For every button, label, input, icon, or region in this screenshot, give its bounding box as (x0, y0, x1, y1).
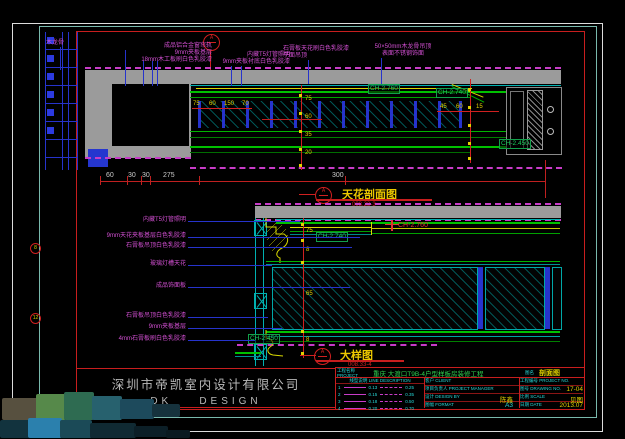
slab-dashed-bottom-left (85, 157, 191, 159)
ceiling-line (276, 219, 560, 220)
dim-chain-vertical (301, 85, 302, 170)
title-leader (299, 194, 315, 195)
stud (545, 267, 550, 329)
dim-tick (468, 106, 471, 109)
ceiling-line (266, 261, 560, 262)
dim-line-horizontal (192, 108, 252, 109)
dim-tick (299, 148, 302, 151)
line-sample (344, 401, 366, 402)
screw-symbol (547, 106, 554, 113)
glass-panel (552, 267, 562, 330)
legend-weight: 0.20 (369, 406, 378, 411)
dim-value: 75 (305, 96, 312, 102)
strip-divider (62, 32, 63, 170)
watermark-block (2, 398, 38, 420)
leader-line (188, 287, 350, 288)
stud (270, 101, 273, 128)
watermark-block (90, 423, 136, 438)
field-label: 设计 DESIGN BY (425, 394, 460, 401)
leader-line (188, 247, 352, 248)
stud (366, 101, 369, 128)
legend-row: 1 0.13 0.25 (336, 384, 424, 391)
fields-left: 客户 CLIENT 项目负责人 PROJECT MANAGER 设计 DESIG… (425, 378, 520, 408)
keynote-number: 8 (34, 245, 37, 251)
annotation-line: 9mm夹板基层 (136, 50, 212, 57)
field-value: 陈鑫 (500, 394, 519, 401)
ceiling-line (266, 336, 560, 337)
annotation-line: 50×50mm木龙骨吊顶 (368, 44, 438, 51)
ceiling-line (190, 97, 471, 98)
line-sample-dashed (380, 394, 402, 395)
drawing-name: 剖面图 (539, 368, 560, 378)
screw-symbol (547, 128, 554, 135)
legend-weight: 0.18 (369, 399, 378, 404)
ledge-line (235, 352, 261, 354)
dim-tick (301, 239, 304, 242)
watermark-block (36, 394, 66, 420)
annotation: 4mm石膏板刷白色乳胶漆 (40, 336, 186, 343)
section-marker-letter: A (210, 35, 213, 41)
legend-weight: 0.15 (369, 392, 378, 397)
ch-level-tag: CH-2.760 (368, 84, 400, 94)
ch-level-tag: CH-2.450 (248, 334, 280, 344)
detail-bubble-letter: A (322, 188, 325, 194)
revision-strip (45, 32, 78, 170)
title-underline (316, 199, 432, 201)
annotation-line: 成品铝合金窗帘轨 (136, 43, 212, 50)
legend-weight: 0.13 (369, 385, 378, 390)
fields-right: 工程编号 PROJECT NO. 图号 DRAWING NO. 17-04 比例… (520, 378, 583, 408)
dim-value: 60 (456, 104, 463, 110)
leader-line (308, 60, 309, 84)
field-label: 图号 DRAWING NO. (520, 386, 561, 393)
dim-value: 75 (306, 228, 313, 234)
field-value: A3 (505, 402, 519, 409)
ceiling-line (196, 88, 472, 89)
stud (294, 101, 297, 128)
field-row: 比例 SCALE 见图 (520, 394, 583, 402)
legend-row: 3 0.18 0.50 (336, 398, 424, 405)
leader-line (381, 58, 382, 84)
dim-tick (468, 157, 471, 160)
dim-tick-v (199, 176, 200, 185)
line-sample-dashed (380, 401, 402, 402)
leader-line (125, 50, 126, 86)
slab-strip (255, 206, 561, 218)
project-row: 工程名称 PROJECT 重庆 大渡口T9B-4户型样板房装修工程 图名 剖面图 (336, 368, 584, 378)
annotation: 石膏板吊顶白色乳胶漆 (40, 313, 186, 320)
field-value: 见图 (570, 394, 583, 401)
annotation: 木龙骨 (46, 40, 64, 47)
watermark-block (60, 420, 92, 438)
watermark-block (120, 399, 154, 419)
strip-cell-fill (47, 55, 54, 62)
dim-drop-line (545, 160, 546, 198)
title-block-table: 工程名称 PROJECT 重庆 大渡口T9B-4户型样板房装修工程 图名 剖面图… (335, 367, 585, 410)
field-row: 工程编号 PROJECT NO. (520, 378, 583, 386)
dim-value: 60 (106, 172, 114, 179)
ceiling-line (190, 152, 470, 153)
strip-cell-fill (47, 73, 54, 80)
strip-divider (68, 32, 69, 170)
dim-tick (299, 94, 302, 97)
watermark-block (166, 430, 190, 438)
stud (342, 101, 345, 128)
slab-top-strip (191, 70, 561, 84)
line-sample (344, 394, 366, 395)
annotation: 成品饰面板 (40, 283, 186, 290)
strip-cell-fill (47, 109, 54, 116)
field-row: 图幅 FORMAT A3 (425, 402, 519, 409)
project-label: 工程名称 PROJECT (336, 368, 373, 378)
field-value: 17-04 (566, 386, 583, 393)
stud (318, 101, 321, 128)
dim-value: 35 (305, 132, 312, 138)
ceiling-line (266, 341, 560, 342)
field-label: 客户 CLIENT (425, 378, 451, 385)
annotation: 内藏T5灯管照明 (40, 217, 186, 224)
detail-line-red (262, 119, 322, 120)
field-label: 工程编号 PROJECT NO. (520, 378, 569, 385)
ceiling-line (266, 264, 560, 265)
leader-line (188, 221, 300, 222)
dim-tick (468, 88, 471, 91)
dim-tick-v (345, 176, 346, 185)
dim-tick (299, 112, 302, 115)
dim-value: 150 (224, 101, 234, 107)
legend-weight: 0.50 (405, 399, 414, 404)
ceiling-line (266, 331, 560, 333)
leader-line (60, 47, 61, 70)
stud (478, 267, 483, 329)
leader-line (143, 61, 144, 86)
field-row: 设计 DESIGN BY 陈鑫 (425, 394, 519, 402)
annotation-line: 9mm夹板衬底白色乳胶漆 (222, 59, 290, 66)
cad-drawing-sheet: A CH-2.760 CH-2.740 CH-2.450 75 60 35 (0, 0, 625, 439)
leader-line (188, 237, 360, 238)
annotation-line: 表面不锈钢饰面 (368, 51, 438, 58)
line-sample (344, 408, 366, 409)
dim-tick (468, 124, 471, 127)
dim-value: 20 (305, 150, 312, 156)
annotation: 石膏板吊顶白色乳胶漆 (40, 243, 186, 250)
leader-line (157, 61, 158, 86)
dim-value: 300 (332, 172, 344, 179)
ch-level-tag: CH-2.740 (436, 88, 468, 98)
detail-bubble: A (315, 187, 332, 204)
dim-value: 275 (163, 172, 175, 179)
detail-bubble-letter: A (321, 349, 324, 355)
stud (414, 101, 417, 128)
dim-tick (301, 330, 304, 333)
ceiling-line (372, 233, 560, 234)
dim-value: 8 (306, 337, 309, 343)
glass-hatch (198, 101, 462, 128)
dim-tick (299, 130, 302, 133)
ch-level-tag: CH-2.450 (499, 139, 531, 149)
annotation-line: 石膏板天花刷白色乳胶漆 (283, 46, 363, 53)
dim-line-horizontal (437, 111, 499, 112)
stud (390, 101, 393, 128)
leader-line (188, 328, 282, 329)
annotation-block: 成品铝合金窗帘轨 9mm夹板基层 18mm木工板刷白色乳胶漆 (136, 43, 212, 64)
annotation-block: 内藏T5灯管照明 9mm夹板衬底白色乳胶漆 (222, 52, 290, 66)
watermark-block (0, 420, 30, 438)
leader-line (188, 265, 272, 266)
project-name: 重庆 大渡口T9B-4户型样板房装修工程 (373, 368, 525, 378)
field-label: 比例 SCALE (520, 394, 545, 401)
glass-panel (485, 267, 545, 330)
watermark-block (92, 396, 122, 420)
dim-value: 30 (128, 172, 136, 179)
annotation: 9mm天花夹板基层白色乳胶漆 (40, 233, 186, 240)
line-sample-dashed (380, 387, 402, 388)
company-name: 深圳市帝凯室内设计有限公司 (77, 374, 335, 393)
dim-tick (301, 223, 304, 226)
dim-value: 70 (242, 101, 249, 107)
dim-value: 75 (193, 101, 200, 107)
stud-section-symbol (254, 293, 267, 309)
ceiling-dashed-bottom (190, 167, 562, 169)
dim-value: 15 (476, 104, 483, 110)
dim-tick-v (100, 176, 101, 185)
leader-line (231, 66, 232, 86)
level-flag-arm (385, 224, 399, 225)
annotation-line: 平面吊顶 (283, 53, 363, 60)
leader-line (152, 61, 153, 86)
line-sample (344, 387, 366, 388)
keynote-bubble: 12 (30, 313, 41, 324)
field-label: 图幅 FORMAT (425, 402, 454, 409)
field-row: 客户 CLIENT (425, 378, 519, 386)
keynote-number: 12 (33, 315, 39, 321)
annotation-block: 50×50mm木龙骨吊顶 表面不锈钢饰面 (368, 44, 438, 58)
ledge-line (235, 356, 261, 357)
slab-dashed-outline (255, 203, 561, 205)
dim-value: 30 (142, 172, 150, 179)
legend-row: 2 0.15 0.35 (336, 391, 424, 398)
dim-value: 45 (440, 104, 447, 110)
dim-tick (299, 164, 302, 167)
field-row: 日期 DATE 2013.07 (520, 402, 583, 409)
field-row: 图号 DRAWING NO. 17-04 (520, 386, 583, 394)
level-flag (391, 220, 393, 231)
legend-row: 4 0.20 0.70 (336, 405, 424, 412)
ch-level-red: CH-2.760 (398, 222, 428, 229)
field-row: 项目负责人 PROJECT MANAGER (425, 386, 519, 394)
dim-chain-vertical (470, 79, 471, 163)
dim-value: 60 (209, 101, 216, 107)
watermark-block (64, 392, 94, 420)
watermark-block (134, 426, 168, 437)
slab-cavity (112, 84, 189, 146)
leader-line (188, 317, 268, 318)
annotation: 玻璃灯槽天花 (40, 261, 186, 268)
annotation: 9mm夹板基层 (40, 324, 186, 331)
watermark-block (28, 418, 62, 438)
dim-tick (468, 142, 471, 145)
legend-weight: 0.25 (405, 385, 414, 390)
annotation-line: 18mm木工板刷白色乳胶漆 (136, 57, 212, 64)
keynote-bubble: 8 (30, 243, 41, 254)
drawing-name-label: 图名 (525, 370, 539, 375)
legend-weight: 0.70 (405, 406, 414, 411)
dim-tick-v (150, 176, 151, 185)
legend-no: 1 (338, 385, 341, 390)
watermark-block (152, 404, 180, 417)
dim-tick (301, 261, 304, 264)
line-legend: 线型说明 LINE DESCRIPTION 1 0.13 0.25 2 0.15… (336, 378, 425, 408)
strip-cell-fill (47, 127, 54, 134)
legend-no: 2 (338, 392, 341, 397)
legend-no: 3 (338, 399, 341, 404)
legend-no: 4 (338, 406, 341, 411)
detail-bubble: A (314, 348, 331, 365)
legend-weight: 0.35 (405, 392, 414, 397)
dim-line-bottom (100, 181, 545, 182)
leader-line (241, 66, 242, 86)
annotation-line: 内藏T5灯管照明 (222, 52, 290, 59)
line-sample-dashed (380, 408, 402, 409)
annotation-block: 石膏板天花刷白色乳胶漆 平面吊顶 (283, 46, 363, 60)
leader-line (188, 340, 255, 341)
field-label: 日期 DATE (520, 402, 542, 409)
field-value: 2013.07 (560, 402, 584, 409)
strip-cell-fill (47, 91, 54, 98)
field-label: 项目负责人 PROJECT MANAGER (425, 386, 494, 393)
dim-value: 65 (306, 291, 313, 297)
